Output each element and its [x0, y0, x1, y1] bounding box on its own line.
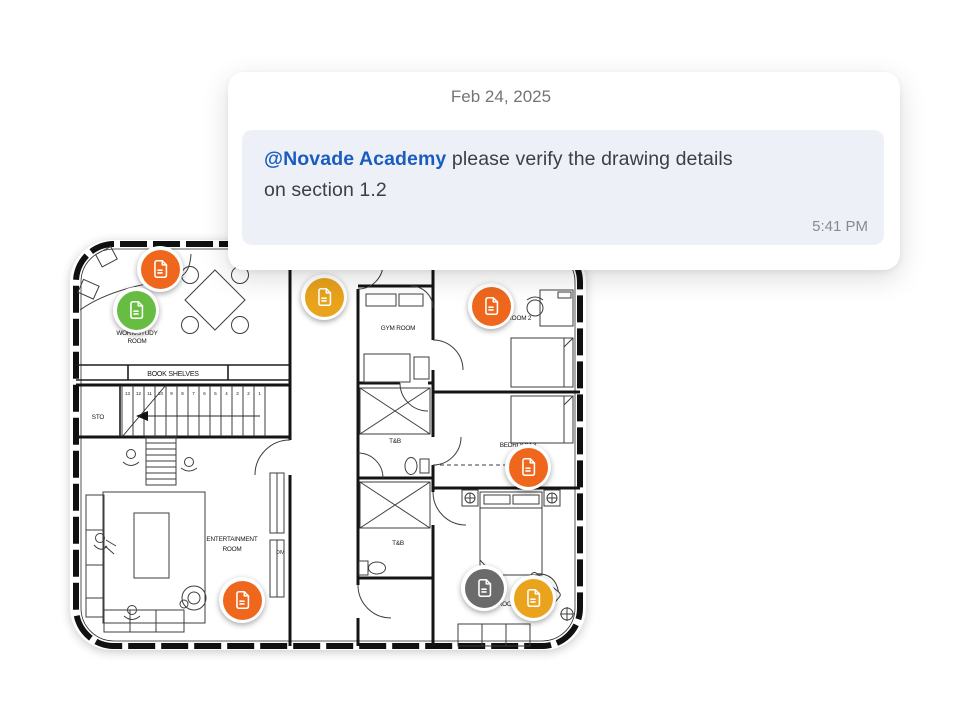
- svg-text:ROOM: ROOM: [127, 338, 146, 345]
- bath-lower: [359, 482, 430, 575]
- marker-corridor-amber[interactable]: [301, 274, 347, 320]
- bath-upper: [360, 388, 430, 475]
- marker-bedroom-amber[interactable]: [510, 575, 556, 621]
- svg-text:4: 4: [225, 391, 228, 396]
- marker-circle: [117, 291, 156, 330]
- document-icon: [149, 258, 171, 280]
- marker-entertainment-orange[interactable]: [219, 577, 265, 623]
- label-sto: STO: [92, 414, 105, 421]
- marker-circle: [509, 448, 548, 487]
- comment-card: Feb 24, 2025 @Novade Academy please veri…: [228, 72, 900, 270]
- gym-furniture: [364, 294, 429, 382]
- marker-circle: [465, 569, 504, 608]
- label-div: DIV: [276, 550, 285, 556]
- svg-text:ROOM: ROOM: [222, 546, 241, 553]
- document-icon: [517, 456, 539, 478]
- comment-text-line2: on section 1.2: [264, 179, 387, 201]
- svg-text:3: 3: [236, 391, 239, 396]
- stairs-arrow: [122, 385, 260, 437]
- svg-text:8: 8: [181, 391, 184, 396]
- comment-timestamp: 5:41 PM: [812, 218, 868, 235]
- bedroom3-furniture: [511, 396, 573, 443]
- app-canvas: 13121110987654321: [0, 0, 969, 720]
- marker-bedroom-gray[interactable]: [461, 565, 507, 611]
- mention-link[interactable]: @Novade Academy: [264, 148, 446, 170]
- label-tb-lower: T&B: [392, 540, 404, 547]
- comment-date: Feb 24, 2025: [165, 87, 837, 107]
- document-icon: [125, 299, 147, 321]
- svg-text:6: 6: [203, 391, 206, 396]
- comment-text-line1: please verify the drawing details: [446, 148, 732, 170]
- document-icon: [480, 295, 502, 317]
- label-book-shelves: BOOK SHELVES: [147, 371, 199, 378]
- document-icon: [313, 286, 335, 308]
- svg-text:9: 9: [170, 391, 173, 396]
- marker-circle: [223, 581, 262, 620]
- comment-text: @Novade Academy please verify the drawin…: [264, 144, 868, 206]
- bedroom2-furniture: [511, 290, 573, 387]
- marker-circle: [514, 579, 553, 618]
- marker-work-study-orange[interactable]: [137, 246, 183, 292]
- svg-text:11: 11: [147, 391, 152, 396]
- label-gym: GYM ROOM: [381, 325, 416, 332]
- dining-set-top: [182, 267, 249, 334]
- label-tb-upper: T&B: [389, 438, 401, 445]
- document-icon: [473, 577, 495, 599]
- svg-text:7: 7: [192, 391, 195, 396]
- marker-bedroom3-orange[interactable]: [505, 444, 551, 490]
- marker-circle: [305, 278, 344, 317]
- marker-circle: [472, 287, 511, 326]
- svg-text:1: 1: [258, 391, 261, 396]
- label-entertainment: ENTERTAINMENT: [206, 536, 257, 543]
- comment-bubble: @Novade Academy please verify the drawin…: [242, 130, 884, 245]
- marker-circle: [141, 250, 180, 289]
- svg-text:13: 13: [125, 391, 130, 396]
- marker-work-study-green[interactable]: [113, 287, 159, 333]
- marker-bedroom2-orange[interactable]: [468, 283, 514, 329]
- document-icon: [231, 589, 253, 611]
- svg-text:2: 2: [247, 391, 250, 396]
- document-icon: [522, 587, 544, 609]
- svg-text:5: 5: [214, 391, 217, 396]
- svg-text:12: 12: [136, 391, 141, 396]
